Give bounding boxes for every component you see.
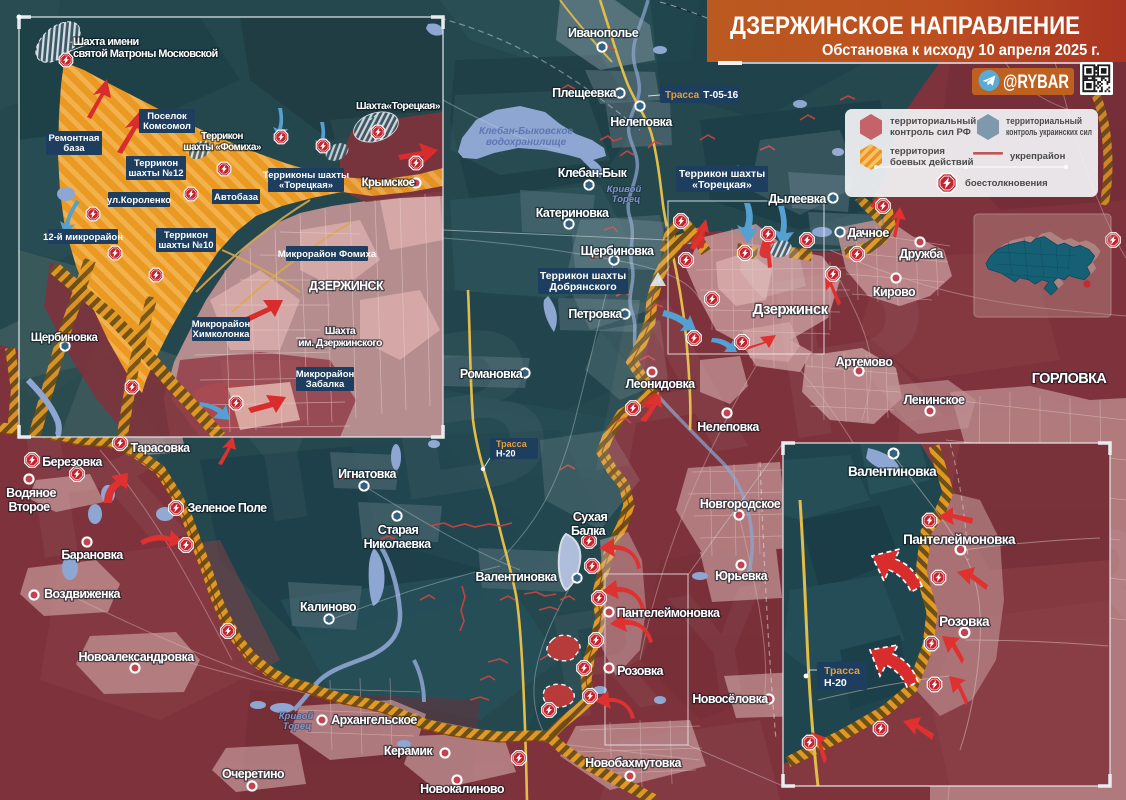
- svg-text:Сухая: Сухая: [573, 510, 608, 524]
- svg-text:контроль украинских сил: контроль украинских сил: [1006, 127, 1092, 137]
- svg-text:Забалка: Забалка: [306, 379, 345, 390]
- svg-text:Старая: Старая: [378, 523, 419, 537]
- svg-text:Дачное: Дачное: [847, 226, 889, 240]
- svg-text:Дылеевка: Дылеевка: [768, 192, 827, 206]
- svg-text:Клебан-Быковское: Клебан-Быковское: [479, 125, 573, 137]
- svg-text:Очеретино: Очеретино: [222, 767, 285, 781]
- svg-text:Архангельское: Архангельское: [331, 713, 417, 727]
- svg-text:Трасса: Трасса: [496, 439, 528, 449]
- svg-text:укрепрайон: укрепрайон: [1010, 151, 1066, 162]
- svg-text:шахты №10: шахты №10: [158, 240, 213, 251]
- svg-text:Керамик: Керамик: [384, 744, 433, 758]
- svg-text:Новоалександровка: Новоалександровка: [78, 650, 195, 664]
- svg-text:Воздвиженка: Воздвиженка: [44, 587, 121, 601]
- svg-text:база: база: [63, 143, 85, 154]
- svg-text:Калиново: Калиново: [300, 600, 357, 614]
- svg-text:боестолкновения: боестолкновения: [965, 178, 1048, 189]
- svg-text:Террикон: Террикон: [201, 131, 243, 142]
- svg-text:Второе: Второе: [8, 500, 50, 514]
- svg-text:Ленинское: Ленинское: [904, 393, 965, 407]
- svg-text:Дзержинск: Дзержинск: [753, 301, 829, 318]
- svg-text:Плещеевка: Плещеевка: [552, 86, 617, 100]
- svg-text:боевых действий: боевых действий: [890, 157, 974, 168]
- svg-text:Микрорайон Фомиха: Микрорайон Фомиха: [278, 249, 377, 260]
- svg-text:Щербиновка: Щербиновка: [31, 332, 99, 344]
- svg-text:Тарасовка: Тарасовка: [131, 441, 192, 455]
- svg-text:Автобаза: Автобаза: [214, 192, 259, 203]
- svg-text:Щербиновка: Щербиновка: [581, 244, 655, 258]
- svg-text:территориальный: территориальный: [1006, 116, 1082, 126]
- svg-text:контроль сил РФ: контроль сил РФ: [890, 127, 971, 138]
- svg-text:им. Дзержинского: им. Дзержинского: [298, 337, 382, 349]
- svg-text:«Торецкая»: «Торецкая»: [692, 179, 752, 191]
- svg-text:Крымское: Крымское: [362, 177, 415, 189]
- svg-text:Н-20: Н-20: [824, 677, 847, 689]
- svg-text:Пантелеймоновка: Пантелеймоновка: [903, 532, 1016, 547]
- svg-text:Иванополье: Иванополье: [568, 26, 639, 40]
- svg-text:Розовка: Розовка: [939, 614, 990, 629]
- svg-text:Комсомол: Комсомол: [143, 121, 191, 132]
- svg-text:Кирово: Кирово: [873, 285, 916, 299]
- svg-text:Новгородское: Новгородское: [700, 497, 781, 511]
- svg-text:Дружба: Дружба: [899, 247, 944, 261]
- svg-text:территориальный: территориальный: [890, 116, 976, 127]
- svg-text:Пантелеймоновка: Пантелеймоновка: [617, 606, 721, 620]
- svg-text:Клебан-Бык: Клебан-Бык: [558, 166, 628, 180]
- svg-text:ГОРЛОВКА: ГОРЛОВКА: [1032, 371, 1108, 387]
- svg-text:Петровка: Петровка: [568, 307, 623, 321]
- svg-text:Водяное: Водяное: [6, 486, 56, 500]
- svg-text:Новосёловка: Новосёловка: [692, 692, 769, 706]
- svg-text:Н-20: Н-20: [496, 449, 516, 459]
- svg-text:Игнатовка: Игнатовка: [338, 467, 397, 481]
- svg-text:Валентиновка: Валентиновка: [476, 570, 559, 584]
- svg-text:Барановка: Барановка: [61, 548, 124, 562]
- svg-text:шахты «Фомиха»: шахты «Фомиха»: [183, 142, 262, 153]
- svg-text:Артемово: Артемово: [836, 355, 893, 369]
- svg-text:ДЗЕРЖИНСКОЕ НАПРАВЛЕНИЕ: ДЗЕРЖИНСКОЕ НАПРАВЛЕНИЕ: [730, 12, 1080, 40]
- svg-text:ДЗЕРЖИНСК: ДЗЕРЖИНСК: [309, 279, 384, 293]
- svg-text:Торец: Торец: [283, 721, 311, 732]
- svg-text:территория: территория: [890, 146, 945, 157]
- svg-text:Николаевка: Николаевка: [364, 537, 433, 551]
- svg-text:Добрянского: Добрянского: [549, 281, 616, 293]
- svg-text:Юрьевка: Юрьевка: [715, 569, 769, 583]
- svg-text:Катериновка: Катериновка: [536, 206, 610, 220]
- svg-text:Химколонка: Химколонка: [193, 329, 251, 340]
- svg-text:Шахта имени: Шахта имени: [73, 36, 139, 48]
- svg-text:водохранилище: водохранилище: [486, 137, 567, 148]
- svg-text:Шахта: Шахта: [325, 325, 356, 337]
- svg-text:Романовка: Романовка: [460, 367, 524, 381]
- svg-text:Розовка: Розовка: [617, 664, 664, 678]
- svg-text:@RYBAR: @RYBAR: [1003, 72, 1069, 93]
- svg-text:Валентиновка: Валентиновка: [848, 464, 937, 479]
- svg-text:Балка: Балка: [571, 524, 607, 538]
- svg-text:Шахта«Торецкая»: Шахта«Торецкая»: [356, 100, 441, 112]
- svg-text:ул.Короленко: ул.Короленко: [107, 195, 171, 206]
- svg-text:Нелеповка: Нелеповка: [697, 420, 760, 434]
- svg-text:Новобахмутовка: Новобахмутовка: [585, 756, 682, 770]
- svg-text:Березовка: Березовка: [42, 455, 103, 469]
- svg-text:святой Матроны Московской: святой Матроны Московской: [73, 48, 218, 60]
- svg-text:Нелеповка: Нелеповка: [610, 115, 673, 129]
- svg-text:Торец: Торец: [612, 194, 640, 205]
- svg-text:Трасса: Трасса: [824, 665, 860, 677]
- svg-text:«Торецкая»: «Торецкая»: [279, 180, 333, 191]
- svg-text:шахты №12: шахты №12: [128, 168, 183, 179]
- svg-text:Зеленое Поле: Зеленое Поле: [188, 501, 268, 515]
- svg-text:Леонидовка: Леонидовка: [625, 377, 696, 391]
- svg-text:12-й микрорайон: 12-й микрорайон: [43, 232, 123, 243]
- svg-text:Новокалиново: Новокалиново: [420, 782, 505, 796]
- svg-text:Обстановка к исходу 10 апреля: Обстановка к исходу 10 апреля 2025 г.: [822, 42, 1100, 59]
